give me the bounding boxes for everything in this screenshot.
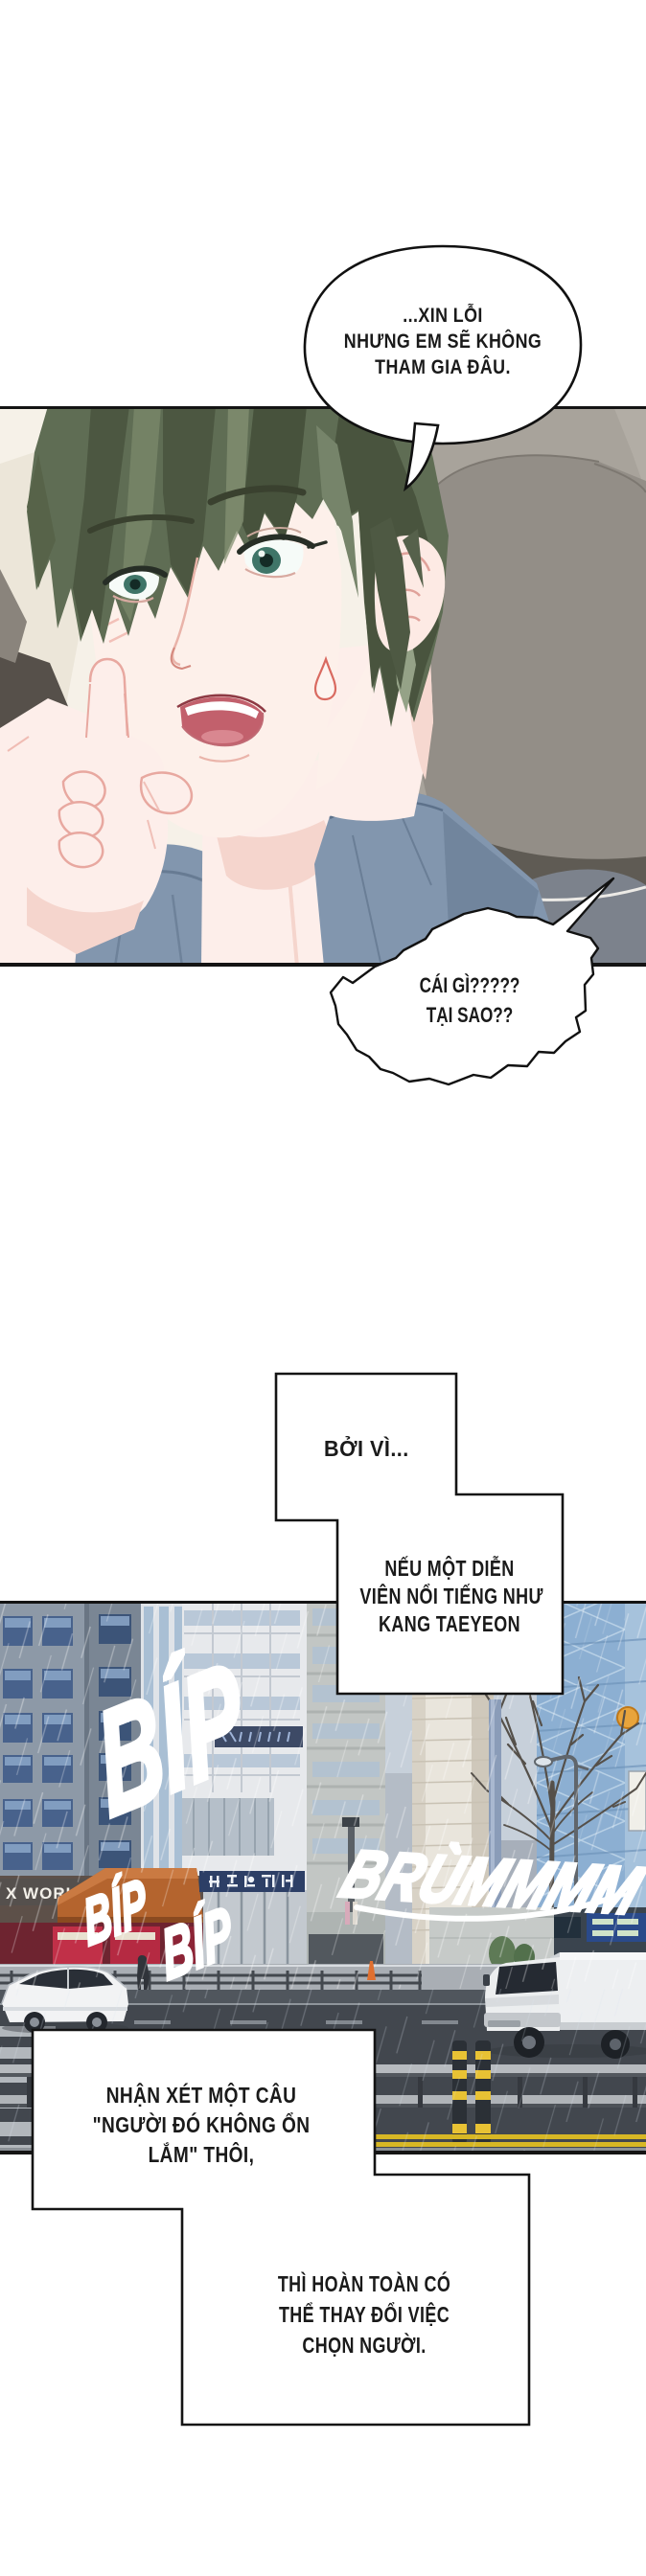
svg-text:BÍP: BÍP [86,1630,256,1849]
svg-text:BÍP: BÍP [80,1866,151,1960]
svg-text:BRÙMMMM: BRÙMMMM [333,1836,646,1928]
svg-text:BÍP: BÍP [157,1892,238,1995]
